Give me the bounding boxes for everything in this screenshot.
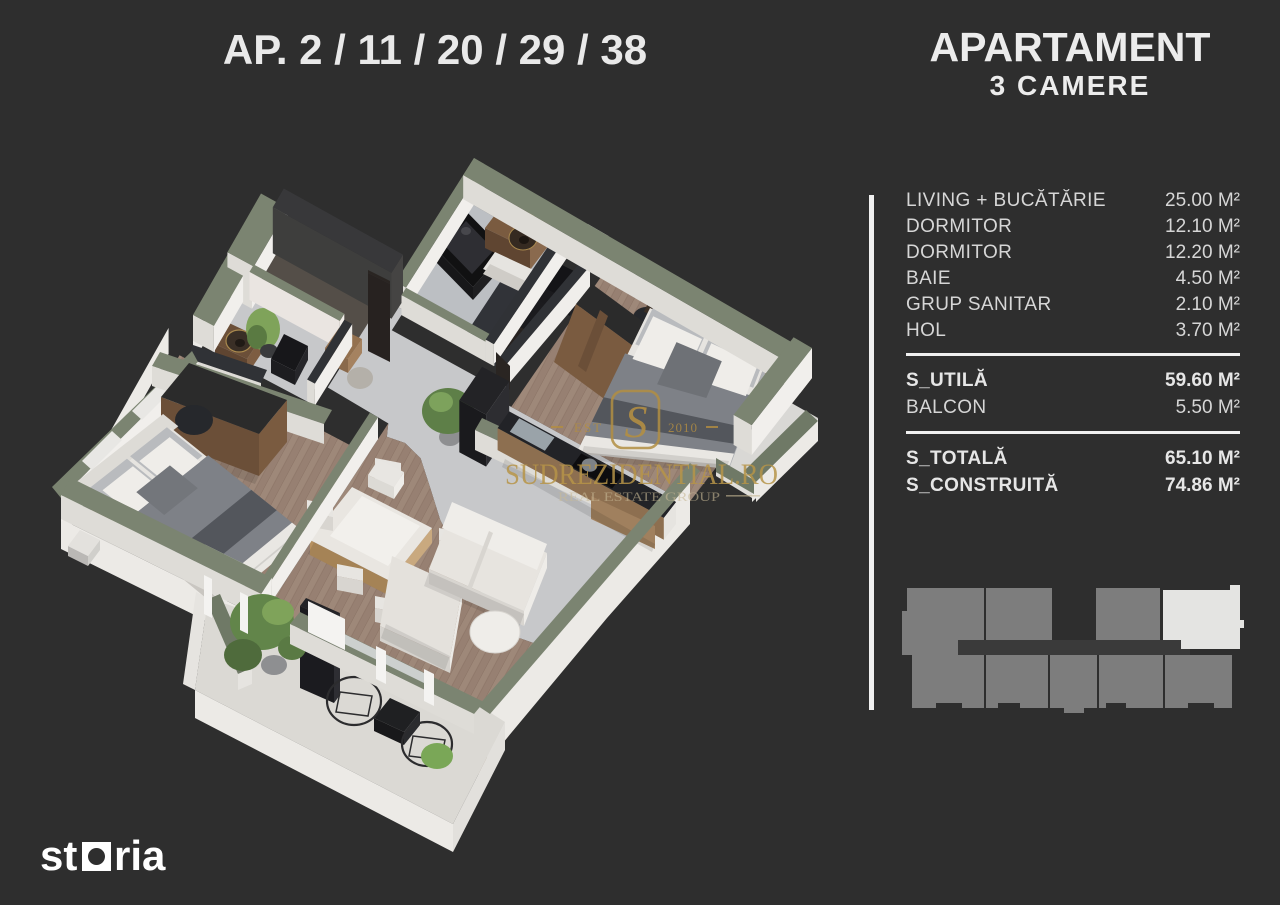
svg-text:st: st [40, 832, 77, 878]
svg-text:ria: ria [114, 832, 166, 878]
svg-text:REAL ESTATE GROUP: REAL ESTATE GROUP [558, 490, 720, 504]
svg-text:2010: 2010 [668, 420, 698, 435]
svg-text:SUDREZIDENTIAL.RO: SUDREZIDENTIAL.RO [505, 458, 778, 491]
svg-text:S: S [625, 396, 648, 447]
svg-text:EST: EST [574, 420, 603, 435]
